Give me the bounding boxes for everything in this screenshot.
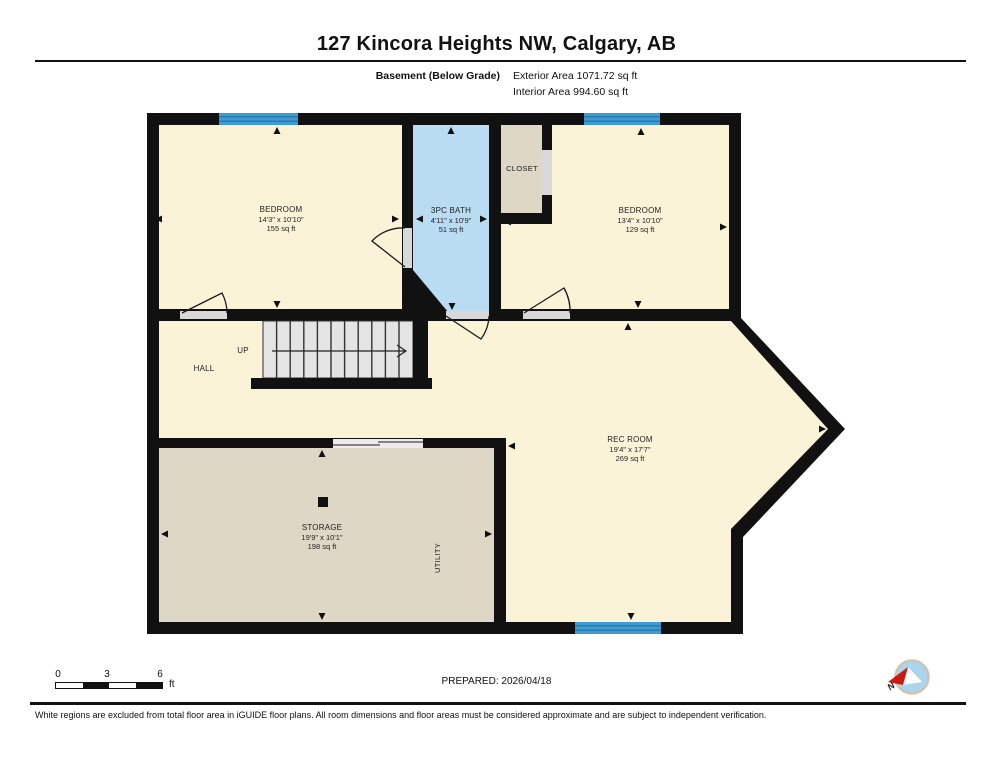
closet-label: CLOSET [506, 164, 538, 173]
door-opening-bath-south [446, 311, 489, 319]
stairs-up-label: UP [237, 346, 249, 355]
rec-room-label: REC ROOM [607, 435, 653, 444]
window [575, 622, 661, 634]
compass-icon: N [880, 654, 944, 702]
bedroom-2-label: BEDROOM [619, 206, 662, 215]
rec-room-dims: 19'4" x 17'7" [609, 445, 650, 454]
footer-divider [30, 702, 966, 705]
bedroom-1-area: 155 sq ft [267, 224, 297, 233]
stairs-end-wall [413, 318, 428, 389]
bath-label: 3PC BATH [431, 206, 471, 215]
floor-plan: BEDROOM 14'3" x 10'10" 155 sq ft 3PC BAT… [0, 0, 993, 768]
door-opening-bedroom-2 [523, 311, 570, 319]
storage-bypass-door [333, 439, 423, 448]
bath-area: 51 sq ft [439, 225, 465, 234]
stairs-treads [263, 321, 413, 378]
closet-sliding-door [542, 150, 552, 195]
bedroom-1-dims: 14'3" x 10'10" [258, 215, 304, 224]
stairs-bottom-wall [251, 378, 432, 389]
storage-dims: 19'9" x 10'1" [301, 533, 342, 542]
rec-room-area: 269 sq ft [616, 454, 646, 463]
disclaimer-text: White regions are excluded from total fl… [35, 710, 965, 720]
door-opening-bath-west [403, 228, 412, 268]
window [219, 113, 298, 125]
utility-label: UTILITY [433, 543, 442, 573]
floorplan-page: 127 Kincora Heights NW, Calgary, AB Base… [0, 0, 993, 768]
bedroom-2-dims: 13'4" x 10'10" [617, 216, 663, 225]
window [584, 113, 660, 125]
door-opening-bedroom-1 [180, 311, 227, 319]
bath-dims: 4'11" x 10'9" [431, 216, 472, 225]
support-post [318, 497, 328, 507]
prepared-date: PREPARED: 2026/04/18 [0, 676, 993, 687]
storage-label: STORAGE [302, 523, 342, 532]
bedroom-1-label: BEDROOM [260, 205, 303, 214]
storage-area: 198 sq ft [308, 542, 338, 551]
bedroom-2-area: 129 sq ft [626, 225, 656, 234]
hall-label: HALL [194, 364, 215, 373]
